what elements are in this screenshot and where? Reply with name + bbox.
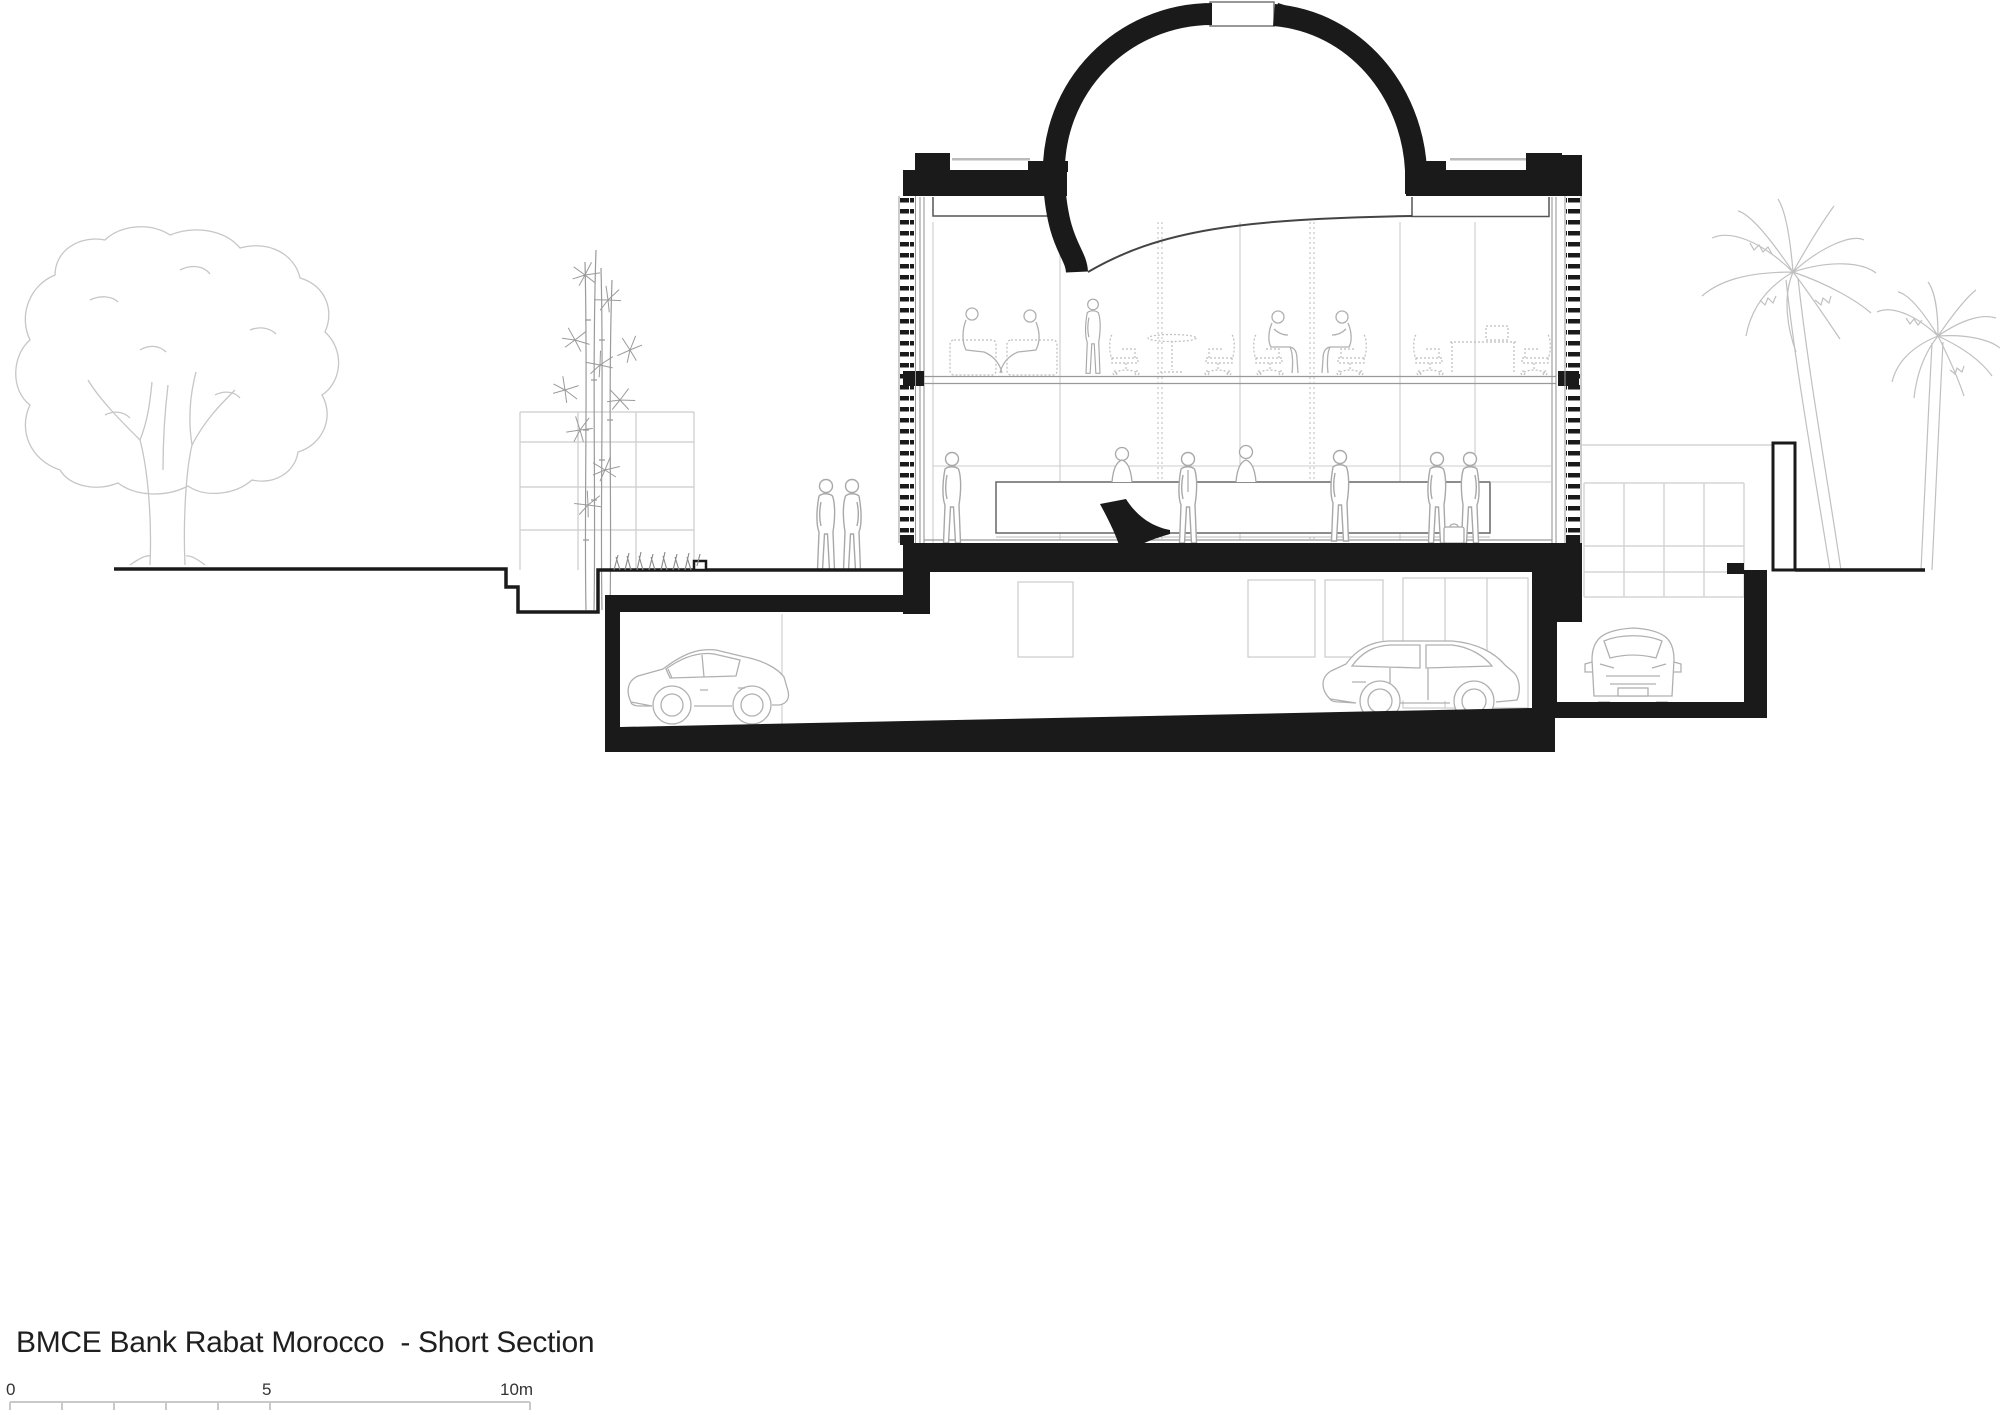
scale-label-mid: 5 bbox=[262, 1380, 271, 1400]
upper-floor-slab bbox=[903, 371, 1579, 386]
ground-floor bbox=[817, 0, 1552, 572]
car-sedan bbox=[628, 650, 788, 724]
drawing-title: BMCE Bank Rabat Morocco - Short Section bbox=[16, 1326, 594, 1360]
palm-trees bbox=[1702, 199, 2000, 570]
ground-slab-and-basement bbox=[605, 543, 1767, 752]
upper-floor-people bbox=[950, 299, 1550, 375]
section-drawing bbox=[0, 0, 2000, 1415]
round-table bbox=[1148, 335, 1196, 373]
ramp-grille bbox=[1584, 483, 1744, 597]
roof bbox=[903, 153, 1582, 196]
ground-lines bbox=[114, 569, 1925, 612]
right-site-wall bbox=[1773, 443, 1795, 570]
scale-bar bbox=[10, 1402, 530, 1410]
ceiling bbox=[933, 197, 1549, 272]
architectural-section-sheet: BMCE Bank Rabat Morocco - Short Section … bbox=[0, 0, 2000, 1415]
scale-label-end: 10m bbox=[500, 1380, 533, 1400]
curb-block bbox=[694, 561, 706, 570]
car-front-view bbox=[1585, 628, 1681, 702]
dome bbox=[1054, 14, 1416, 272]
bamboo-trellis bbox=[520, 250, 694, 610]
grass bbox=[614, 552, 700, 570]
dome-skylight bbox=[1210, 2, 1274, 26]
scale-label-start: 0 bbox=[6, 1380, 15, 1400]
left-tree bbox=[16, 227, 339, 565]
